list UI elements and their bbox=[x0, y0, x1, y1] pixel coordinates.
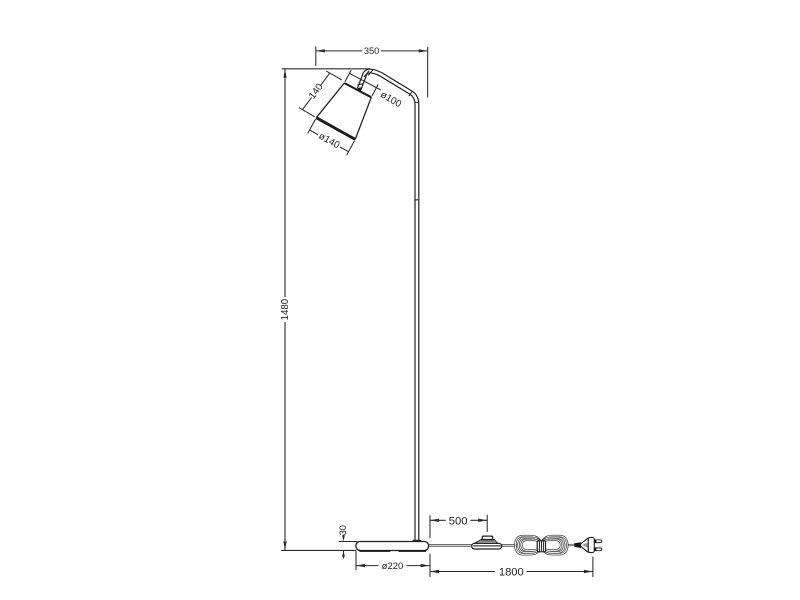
svg-text:500: 500 bbox=[449, 515, 468, 527]
svg-text:30: 30 bbox=[338, 525, 348, 535]
svg-text:350: 350 bbox=[364, 46, 380, 56]
svg-text:ø220: ø220 bbox=[382, 561, 404, 572]
svg-text:1800: 1800 bbox=[499, 567, 524, 579]
svg-text:1480: 1480 bbox=[280, 298, 291, 320]
